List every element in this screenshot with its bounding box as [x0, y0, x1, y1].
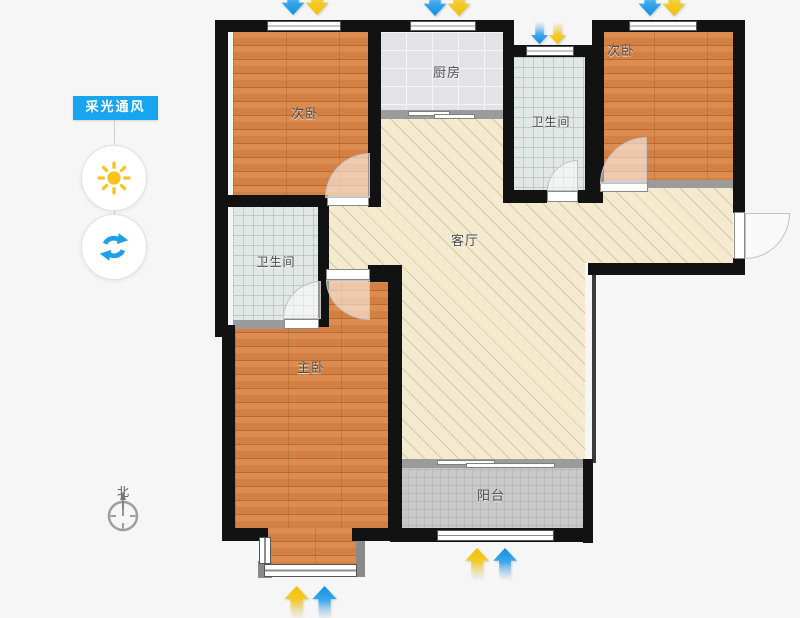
- light-arrow-down-icon: [447, 0, 471, 16]
- room-label-bedroom-top-left: 次卧: [265, 103, 345, 122]
- wall-segment: [215, 20, 228, 337]
- door-swing-arc: [745, 213, 790, 259]
- connector-line: [114, 120, 115, 145]
- wall-segment: [215, 195, 328, 207]
- door-bathroom-left: [284, 319, 319, 329]
- lighting-ventilation-badge: 采光通风: [73, 96, 158, 120]
- room-label-balcony: 阳台: [451, 485, 531, 504]
- wall-segment: [222, 325, 235, 541]
- bay-window-floor: [262, 528, 356, 566]
- bay-window-frame-right: [356, 540, 365, 577]
- wind-arrow-down-icon: [638, 0, 662, 16]
- door-master-bedroom: [326, 269, 370, 280]
- wind-arrow-down-icon: [423, 0, 447, 16]
- kitchen-sliding-door: [434, 114, 475, 119]
- bay-window: [264, 564, 357, 577]
- light-arrow-down-icon: [662, 0, 686, 16]
- window: [437, 530, 554, 541]
- room-label-kitchen: 厨房: [407, 62, 487, 81]
- wind-arrow-up-icon: [311, 586, 338, 618]
- room-label-bathroom-top: 卫生间: [511, 113, 591, 130]
- entry-door: [734, 212, 745, 259]
- sun-icon: [95, 159, 133, 197]
- compass-icon: [102, 488, 144, 538]
- wind-arrow-down-icon: [281, 0, 305, 15]
- window: [267, 21, 341, 31]
- wall-segment: [733, 20, 745, 213]
- light-arrow-down-icon: [305, 0, 329, 15]
- bay-window-side: [259, 537, 271, 564]
- wind-arrow-down-icon: [531, 21, 548, 45]
- wall-segment: [503, 190, 547, 203]
- wall-segment: [352, 528, 392, 541]
- light-arrow-up-icon: [464, 548, 490, 579]
- ventilation-button[interactable]: [81, 214, 147, 280]
- window: [526, 46, 574, 56]
- light-arrow-up-icon: [283, 586, 310, 618]
- refresh-icon: [95, 228, 133, 266]
- wall-segment: [588, 263, 745, 275]
- door-bathroom-top: [547, 191, 578, 202]
- room-label-bedroom-top-right: 次卧: [581, 40, 661, 59]
- wall-segment: [592, 275, 596, 463]
- daylight-button[interactable]: [81, 145, 147, 211]
- room-label-bathroom-left: 卫生间: [236, 253, 316, 270]
- wall-segment: [368, 265, 390, 282]
- window: [629, 21, 697, 31]
- wall-segment: [388, 265, 402, 541]
- balcony-sliding-door: [466, 463, 555, 468]
- window: [410, 21, 476, 31]
- floorplan-page: { "view": { "mode_badge": "采光通风" }, "sid…: [0, 0, 800, 600]
- room-label-master-bedroom: 主卧: [271, 357, 351, 376]
- light-arrow-down-icon: [549, 21, 566, 45]
- room-label-living-room: 客厅: [425, 230, 505, 249]
- wind-arrow-up-icon: [492, 548, 518, 579]
